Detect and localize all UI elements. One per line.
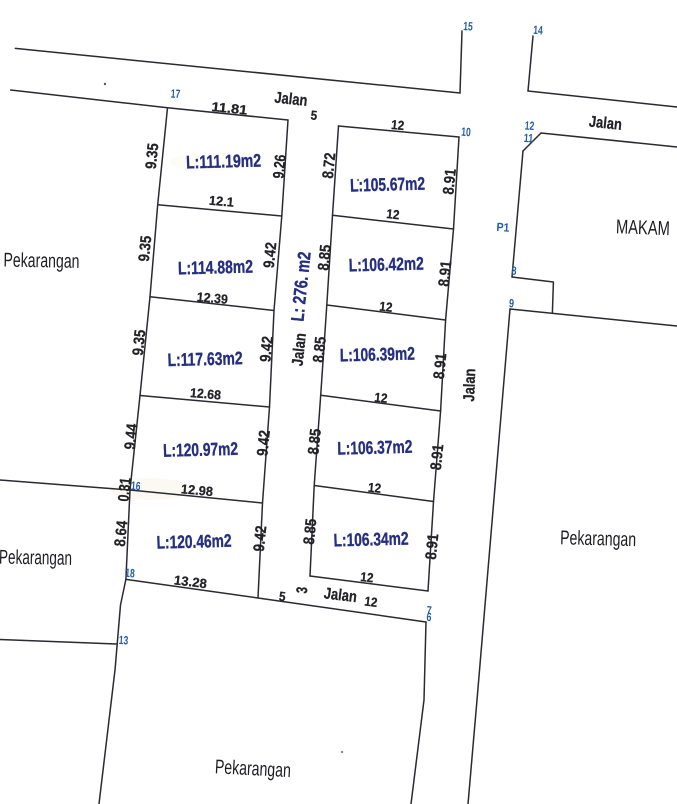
svg-text:8.85: 8.85 (305, 427, 325, 455)
svg-text:12.39: 12.39 (196, 289, 228, 307)
svg-text:P1: P1 (496, 220, 510, 235)
svg-text:L:120.97m2: L:120.97m2 (163, 439, 238, 461)
svg-text:9.42: 9.42 (261, 241, 281, 269)
svg-text:9.35: 9.35 (136, 234, 156, 262)
svg-text:8.85: 8.85 (310, 335, 330, 363)
svg-text:L:117.63m2: L:117.63m2 (167, 348, 242, 370)
svg-text:18: 18 (125, 566, 136, 581)
svg-text:L:106.42m2: L:106.42m2 (348, 254, 423, 276)
svg-text:Pekarangan: Pekarangan (560, 527, 637, 551)
svg-text:L:106.39m2: L:106.39m2 (340, 344, 415, 366)
svg-text:8.91: 8.91 (431, 352, 451, 380)
svg-text:9.35: 9.35 (143, 142, 163, 170)
svg-text:12.1: 12.1 (208, 193, 234, 210)
svg-text:9.42: 9.42 (257, 335, 277, 363)
svg-text:Jalan: Jalan (290, 332, 310, 367)
svg-text:12: 12 (364, 593, 379, 609)
svg-text:L:106.34m2: L:106.34m2 (333, 529, 408, 551)
svg-text:L:111.19m2: L:111.19m2 (186, 151, 261, 173)
svg-text:8.91: 8.91 (440, 167, 460, 195)
svg-text:L:114.88m2: L:114.88m2 (178, 257, 253, 279)
svg-text:8.91: 8.91 (423, 532, 443, 560)
svg-text:MAKAM: MAKAM (616, 216, 671, 240)
svg-text:8.91: 8.91 (436, 259, 456, 287)
svg-text:Jalan: Jalan (461, 368, 479, 402)
svg-text:12.98: 12.98 (180, 481, 213, 499)
svg-text:8.85: 8.85 (301, 517, 321, 545)
svg-text:8.91: 8.91 (428, 443, 448, 471)
svg-text:16: 16 (131, 479, 142, 494)
svg-text:10: 10 (461, 125, 472, 140)
svg-text:9.35: 9.35 (130, 328, 150, 356)
svg-text:Jalan: Jalan (274, 90, 309, 110)
svg-text:17: 17 (170, 86, 181, 101)
svg-text:L:106.37m2: L:106.37m2 (337, 437, 412, 459)
svg-text:12: 12 (386, 206, 400, 222)
svg-text:12: 12 (374, 390, 388, 406)
svg-text:13: 13 (118, 633, 129, 648)
svg-text:8.72: 8.72 (320, 152, 340, 180)
svg-text:Jalan: Jalan (588, 114, 623, 134)
svg-text:9.26: 9.26 (270, 154, 289, 180)
svg-text:9.42: 9.42 (251, 525, 271, 553)
svg-text:12: 12 (379, 299, 393, 315)
svg-text:12.68: 12.68 (189, 385, 221, 403)
svg-text:8.85: 8.85 (315, 243, 335, 271)
svg-text:Pekarangan: Pekarangan (3, 250, 79, 273)
svg-text:12: 12 (360, 569, 374, 585)
svg-text:Pekarangan: Pekarangan (0, 547, 72, 570)
svg-text:Pekarangan: Pekarangan (214, 756, 291, 782)
svg-text:9.42: 9.42 (254, 429, 274, 457)
svg-text:L:105.67m2: L:105.67m2 (350, 174, 425, 196)
svg-text:12: 12 (367, 480, 381, 496)
svg-text:12: 12 (390, 117, 404, 133)
svg-text:8.64: 8.64 (112, 519, 132, 547)
svg-text:14: 14 (533, 23, 544, 38)
svg-text:9.44: 9.44 (122, 422, 142, 450)
svg-text:L:120.46m2: L:120.46m2 (156, 531, 231, 553)
svg-text:15: 15 (463, 19, 474, 34)
svg-text:11: 11 (523, 131, 534, 146)
